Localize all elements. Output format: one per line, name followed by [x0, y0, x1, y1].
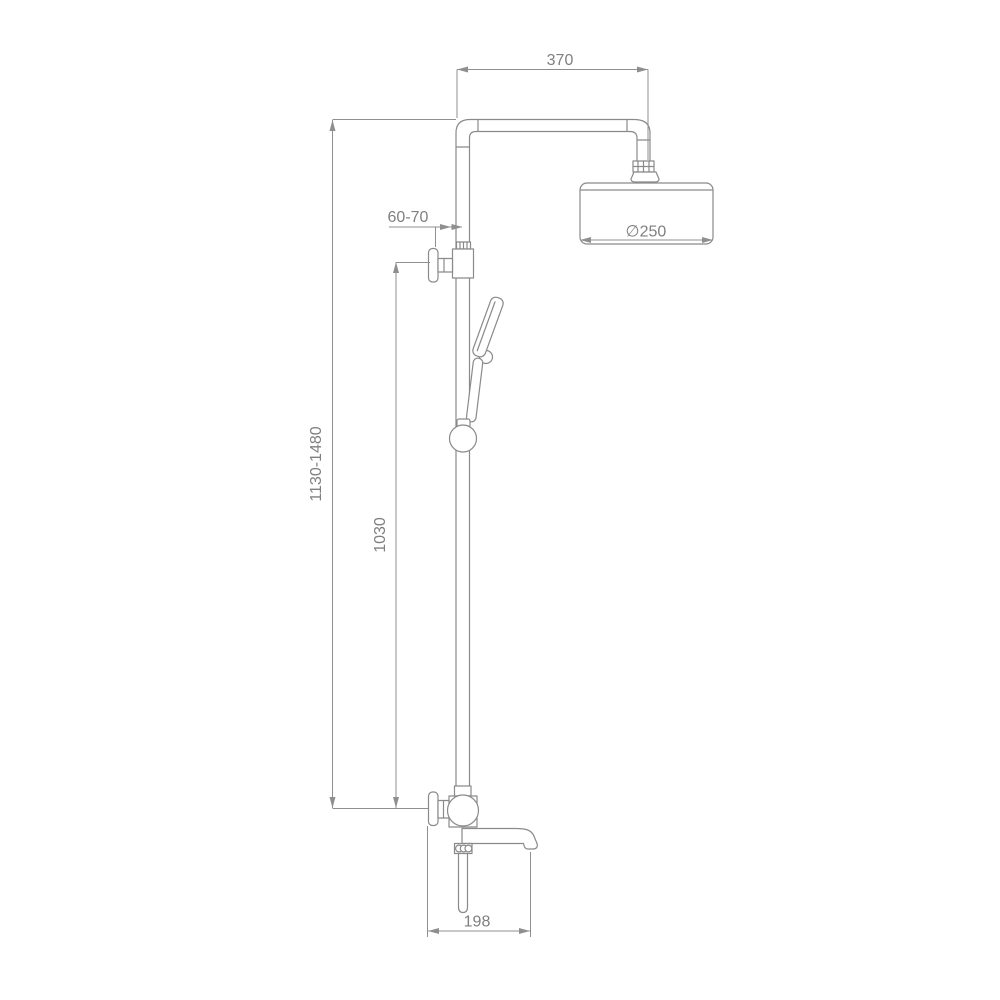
handle-body — [466, 358, 483, 423]
arrow-down — [393, 797, 399, 808]
wall-plate-upper — [429, 249, 439, 283]
arrow-outer — [452, 224, 463, 230]
arrow-inner — [440, 224, 451, 230]
dim-label-1030: 1030 — [372, 517, 389, 553]
dim-label-198: 198 — [464, 914, 491, 931]
hand-shower-wand — [471, 296, 504, 359]
slider-knob — [450, 425, 477, 452]
wand-body — [471, 296, 504, 359]
head-connector — [631, 161, 659, 182]
bracket-arm — [438, 259, 453, 273]
hand-shower — [466, 296, 505, 423]
bracket-coupling — [453, 249, 474, 278]
arrow-down — [330, 797, 336, 808]
valve-handle — [448, 795, 479, 826]
arrow-up — [393, 262, 399, 273]
dim-label-250: ∅250 — [626, 224, 667, 241]
lower-nut-knurl — [465, 845, 472, 852]
dimension-198: 198 — [428, 914, 530, 935]
bath-spout — [462, 829, 537, 850]
slider-bracket — [450, 419, 477, 452]
wall-plate-lower — [429, 792, 439, 826]
dimension-1130-1480: 1130-1480 — [308, 120, 336, 808]
arrow-up — [330, 120, 336, 131]
mixer-valve-assembly — [429, 786, 538, 913]
dimension-370: 370 — [457, 52, 648, 73]
hand-shower-handle — [466, 358, 483, 423]
arrow-left — [457, 67, 468, 73]
technical-drawing: 370 60-70 ∅250 1130-1480 1030 198 — [0, 0, 1000, 1000]
dim-label-1130-1480: 1130-1480 — [308, 426, 325, 501]
dimension-60-70: 60-70 — [388, 209, 463, 230]
arrow-right — [519, 928, 530, 934]
connector-cone — [631, 172, 659, 182]
outlet-pipe — [459, 854, 468, 913]
shower-system-diagram: 370 60-70 ∅250 1130-1480 1030 198 — [0, 0, 1000, 1000]
dim-label-60-70: 60-70 — [388, 209, 429, 226]
dimension-1030: 1030 — [372, 262, 399, 808]
arrow-left — [428, 928, 439, 934]
dim-label-370: 370 — [547, 52, 574, 69]
arrow-right — [637, 67, 648, 73]
upper-wall-bracket — [429, 242, 474, 282]
